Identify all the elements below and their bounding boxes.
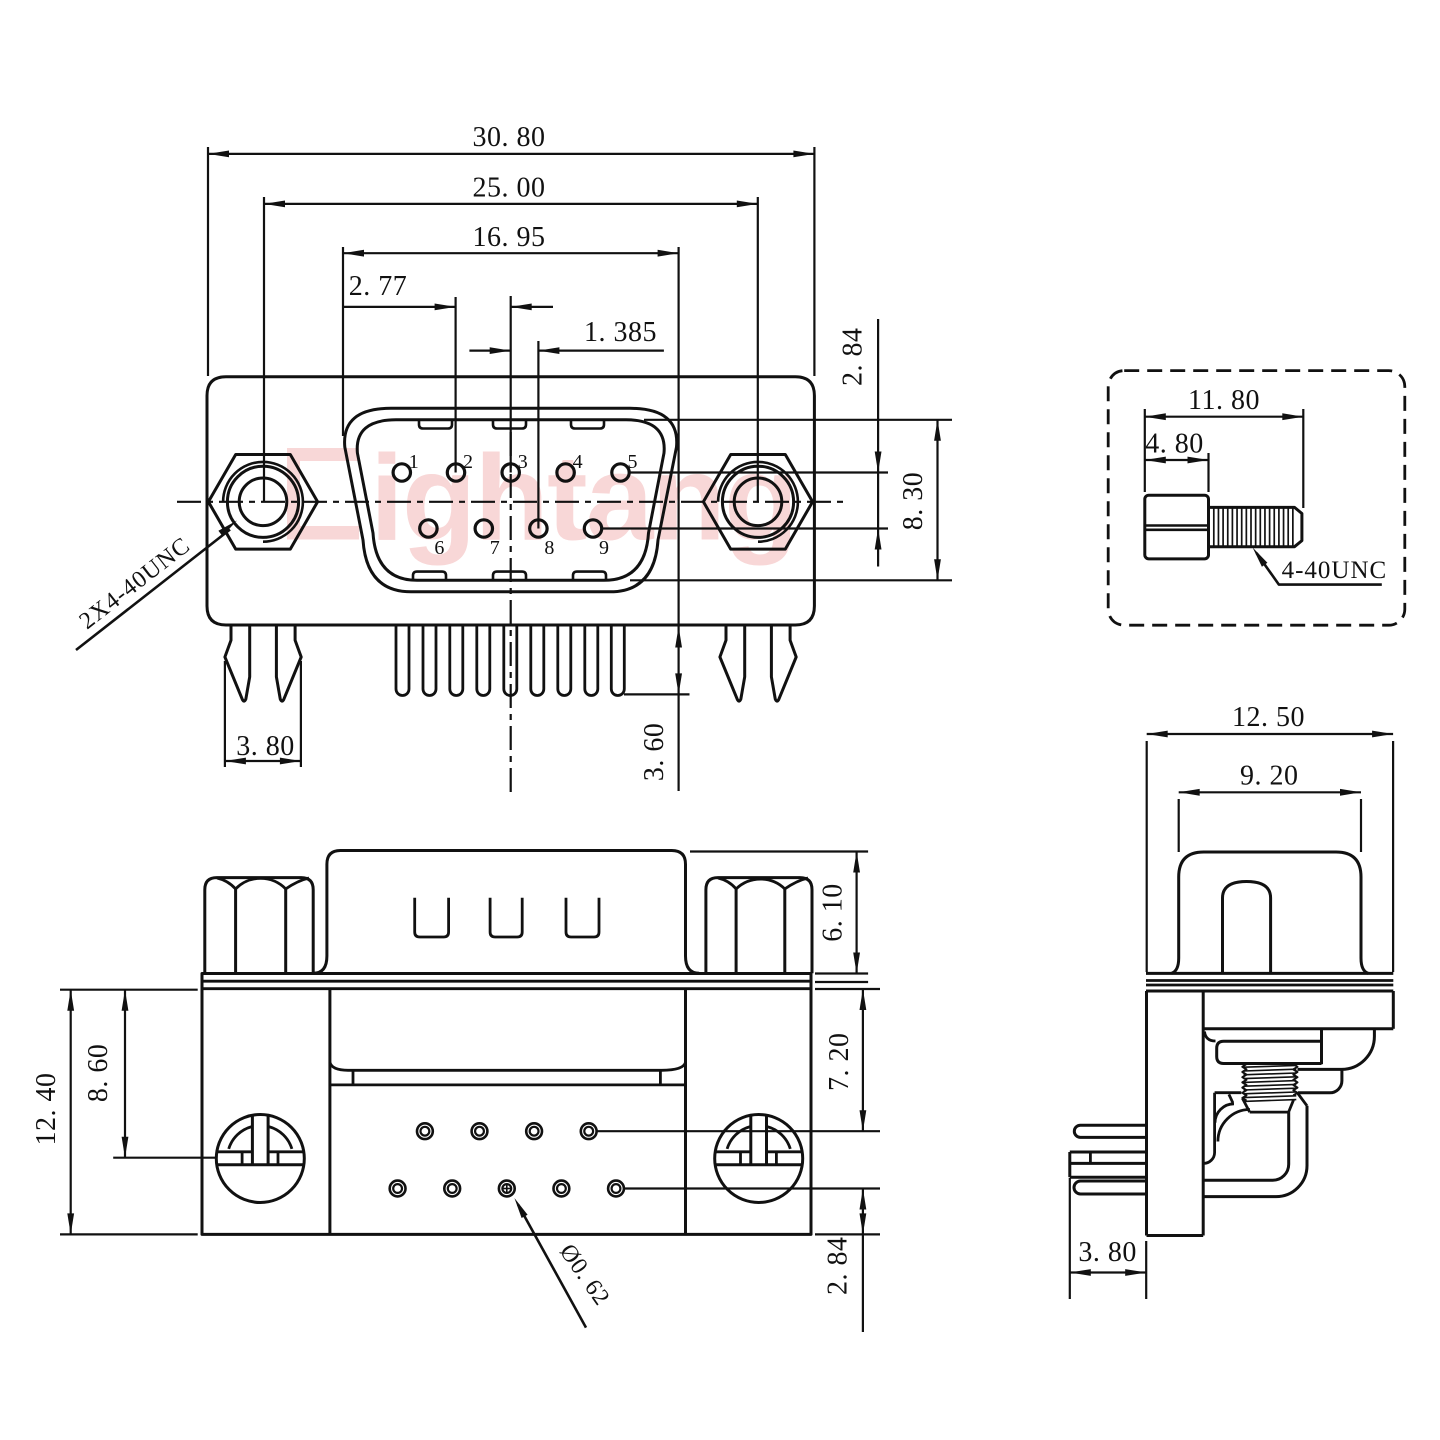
svg-text:7. 20: 7. 20 bbox=[824, 1032, 855, 1091]
svg-text:4: 4 bbox=[573, 451, 583, 473]
svg-text:8. 30: 8. 30 bbox=[898, 472, 929, 531]
svg-text:2. 84: 2. 84 bbox=[838, 328, 869, 387]
svg-text:11. 80: 11. 80 bbox=[1188, 385, 1260, 416]
svg-text:12. 50: 12. 50 bbox=[1232, 702, 1305, 733]
svg-text:1. 385: 1. 385 bbox=[584, 317, 657, 348]
svg-text:8: 8 bbox=[544, 537, 554, 559]
svg-text:5: 5 bbox=[628, 451, 638, 473]
svg-text:30. 80: 30. 80 bbox=[473, 122, 546, 153]
svg-text:16. 95: 16. 95 bbox=[473, 222, 546, 253]
svg-text:25. 00: 25. 00 bbox=[473, 173, 546, 204]
svg-text:4. 80: 4. 80 bbox=[1145, 428, 1204, 459]
svg-text:2: 2 bbox=[463, 451, 473, 473]
svg-text:4-40UNC: 4-40UNC bbox=[1282, 557, 1388, 584]
svg-text:12. 40: 12. 40 bbox=[31, 1073, 62, 1146]
svg-text:2. 77: 2. 77 bbox=[349, 271, 408, 302]
svg-text:3. 60: 3. 60 bbox=[639, 723, 670, 782]
svg-text:8. 60: 8. 60 bbox=[83, 1044, 114, 1103]
svg-text:9. 20: 9. 20 bbox=[1240, 761, 1299, 792]
svg-text:9: 9 bbox=[599, 537, 609, 559]
svg-text:3. 80: 3. 80 bbox=[236, 731, 295, 762]
svg-text:1: 1 bbox=[409, 451, 419, 473]
svg-text:2. 84: 2. 84 bbox=[823, 1236, 854, 1295]
svg-text:7: 7 bbox=[490, 537, 500, 559]
svg-text:3: 3 bbox=[518, 451, 528, 473]
svg-text:3. 80: 3. 80 bbox=[1078, 1237, 1137, 1268]
svg-text:6. 10: 6. 10 bbox=[817, 883, 848, 942]
svg-text:6: 6 bbox=[434, 537, 444, 559]
